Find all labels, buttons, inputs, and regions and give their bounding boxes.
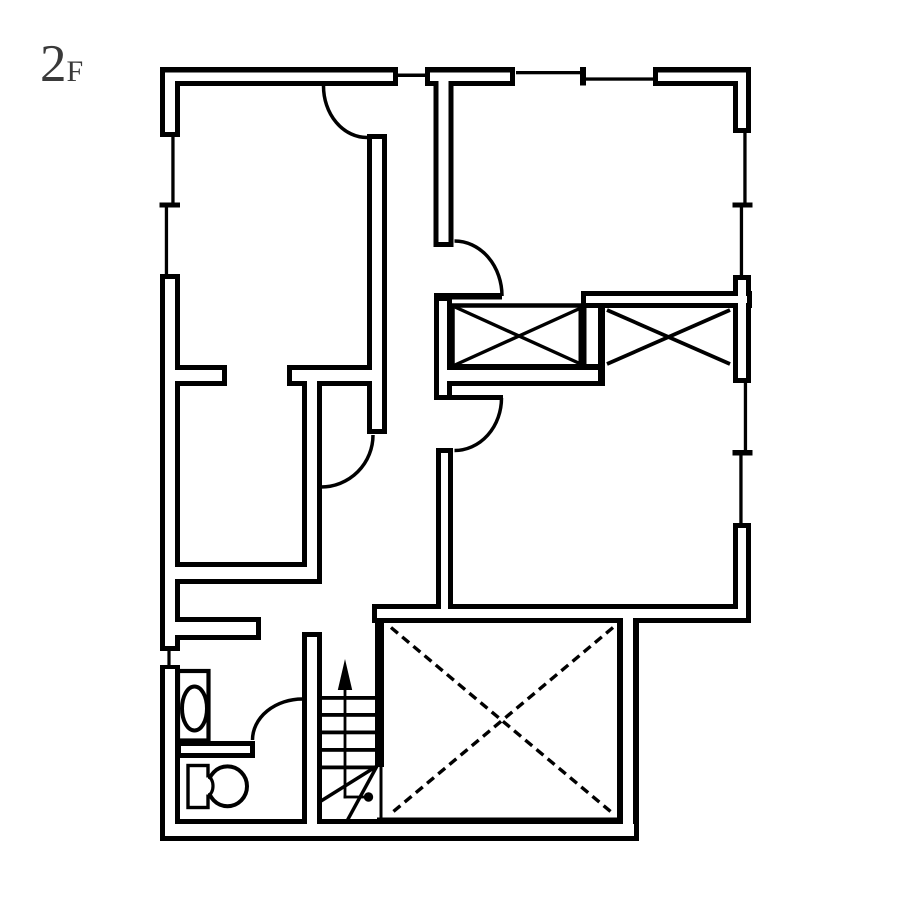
svg-text:2: 2 bbox=[40, 35, 67, 93]
svg-text:F: F bbox=[67, 55, 84, 88]
